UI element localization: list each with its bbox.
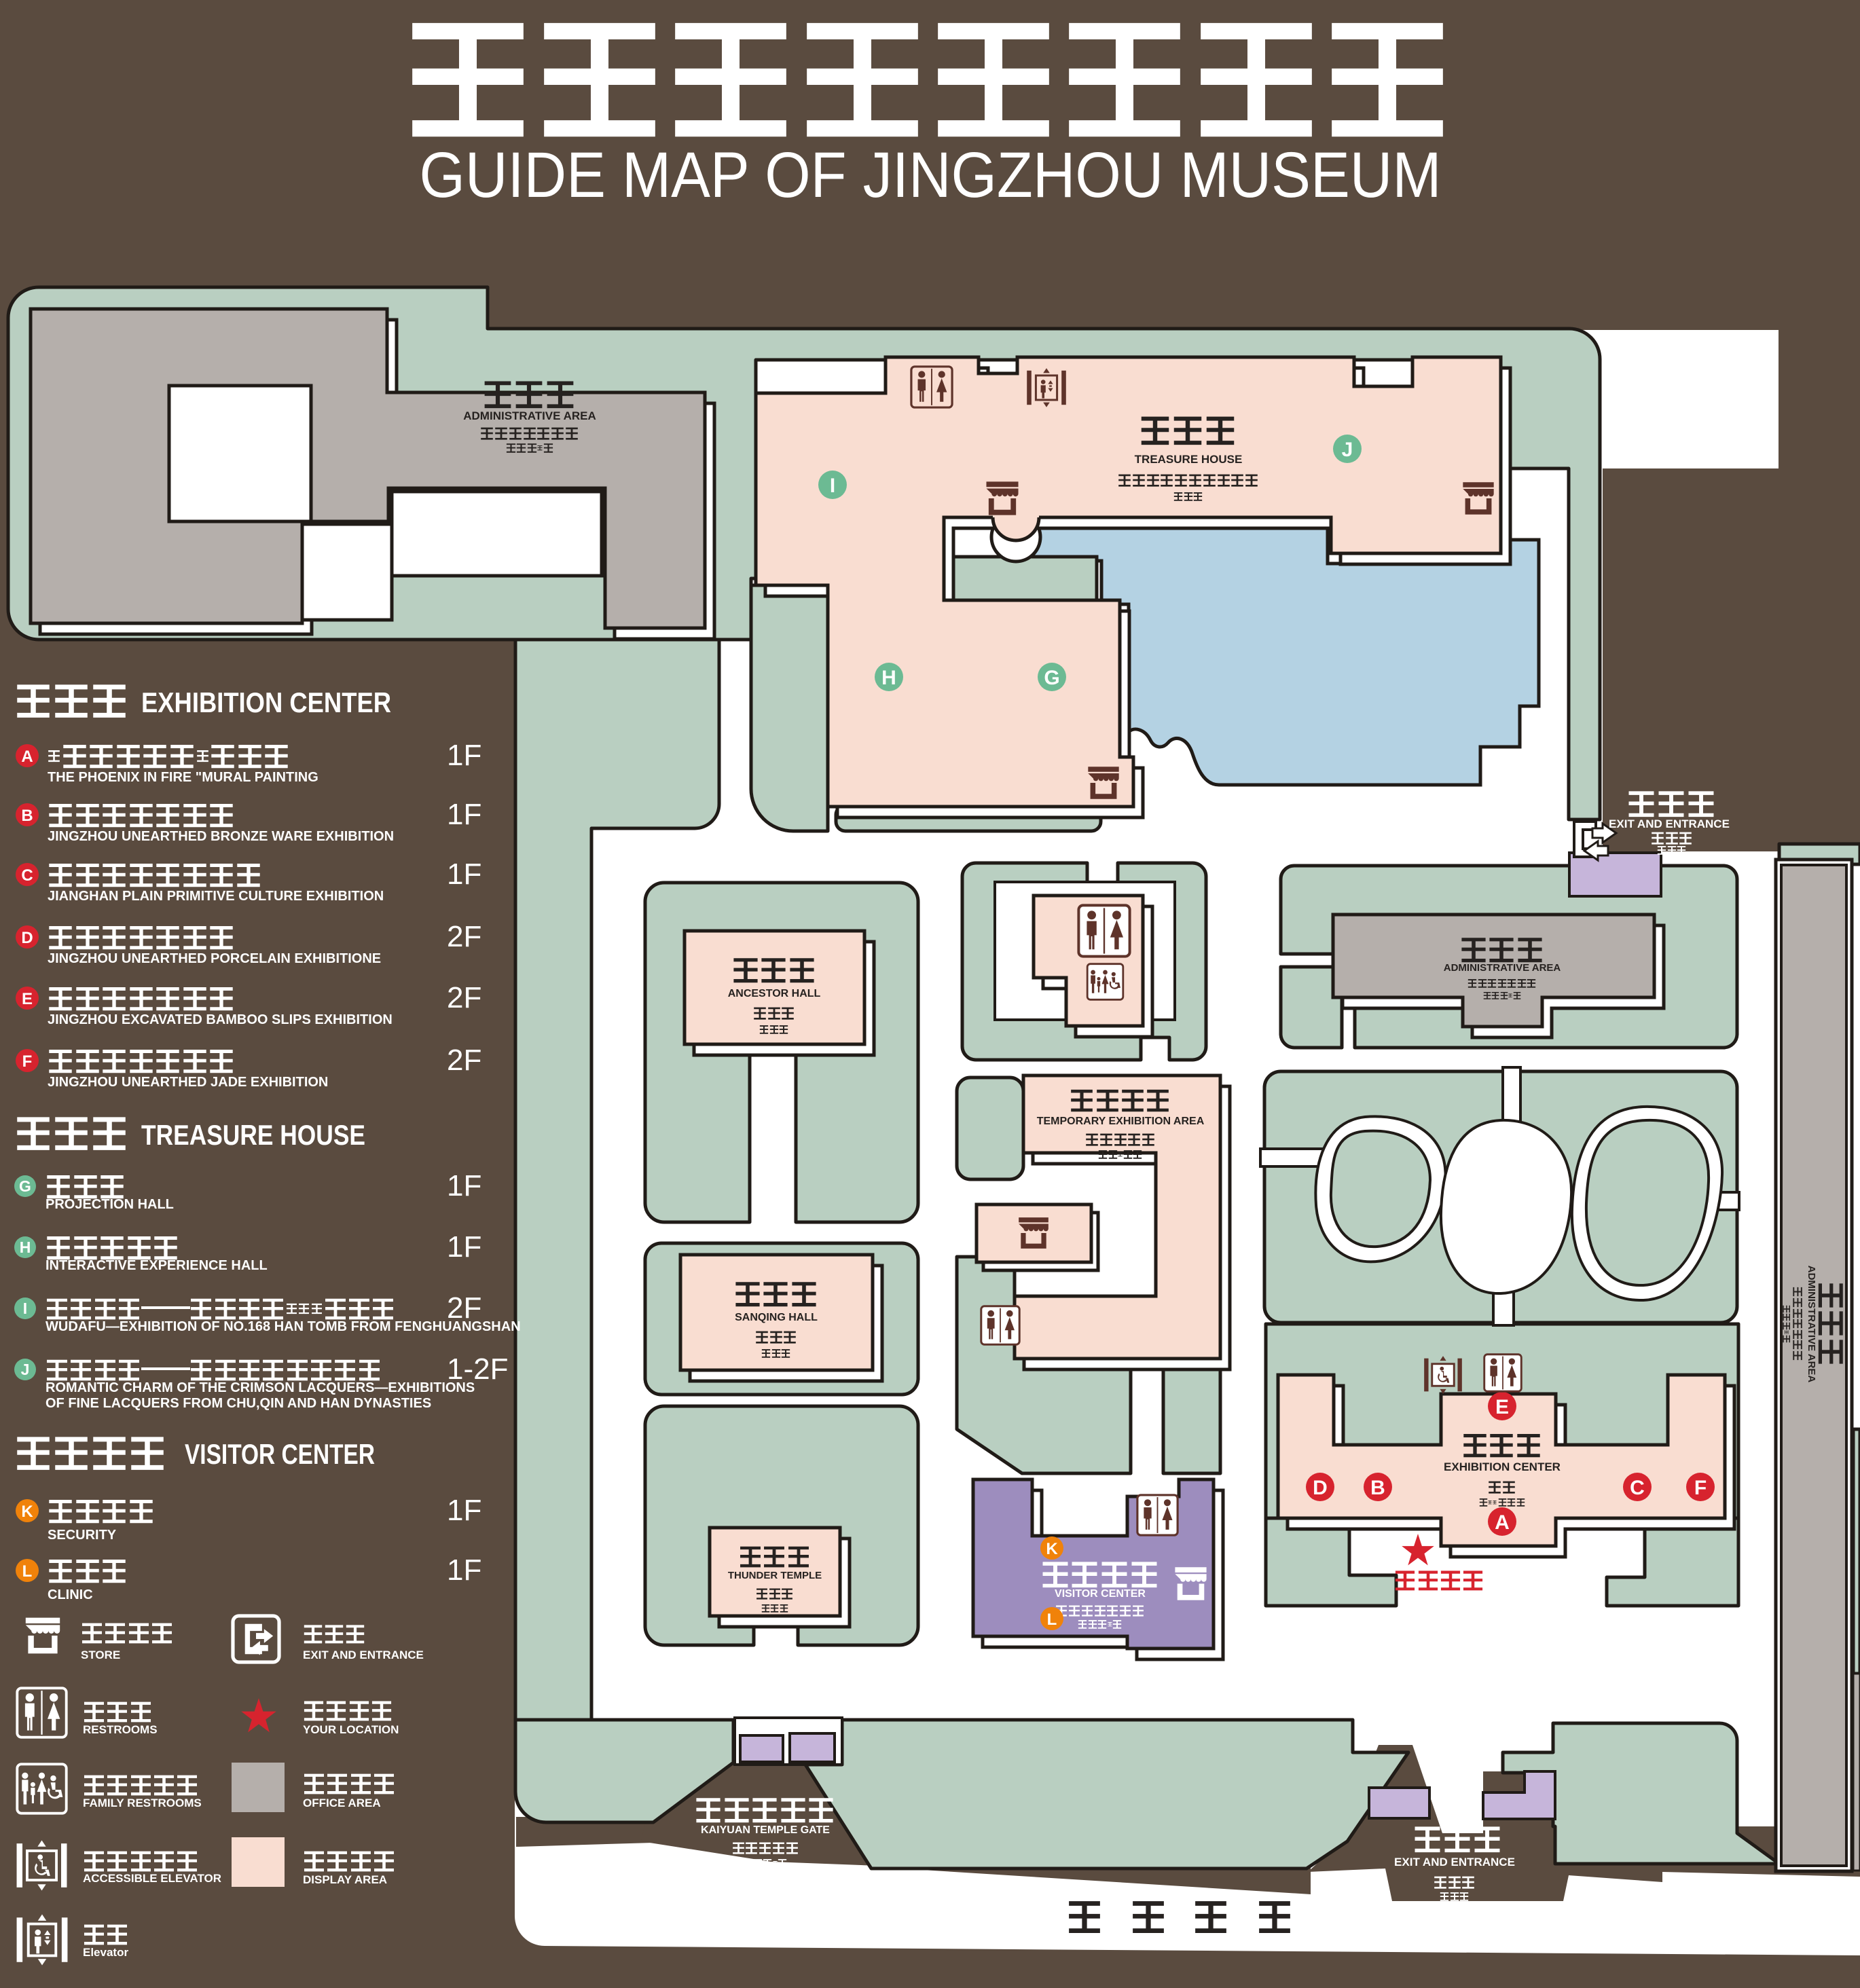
svg-text:I: I — [23, 1300, 27, 1317]
svg-text:J: J — [1342, 439, 1353, 461]
svg-text:EXHIBITION CENTER: EXHIBITION CENTER — [141, 686, 391, 718]
svg-text:C: C — [21, 866, 33, 885]
svg-text:1F: 1F — [447, 798, 481, 831]
svg-text:A: A — [21, 748, 33, 766]
svg-text:B: B — [21, 807, 33, 825]
svg-text:1F: 1F — [447, 1169, 481, 1202]
svg-text:SECURITY: SECURITY — [48, 1528, 117, 1543]
svg-text:JINGZHOU UNEARTHED PORCELAIN E: JINGZHOU UNEARTHED PORCELAIN EXHIBITIONE — [48, 951, 381, 966]
svg-text:VISITOR CENTER: VISITOR CENTER — [1055, 1588, 1146, 1600]
svg-text:EXIT AND ENTRANCE: EXIT AND ENTRANCE — [1609, 817, 1730, 830]
svg-text:A: A — [1495, 1511, 1510, 1534]
svg-text:G: G — [1044, 667, 1059, 689]
svg-text:KAIYUAN TEMPLE GATE: KAIYUAN TEMPLE GATE — [701, 1824, 830, 1836]
svg-text:E: E — [22, 990, 33, 1008]
svg-text:1F: 1F — [447, 1553, 481, 1587]
svg-text:K: K — [21, 1503, 33, 1521]
svg-text:EXIT AND ENTRANCE: EXIT AND ENTRANCE — [1394, 1856, 1515, 1869]
svg-text:2F: 2F — [447, 1291, 481, 1325]
svg-text:K: K — [1046, 1540, 1058, 1558]
svg-text:D: D — [21, 929, 33, 947]
svg-text:D: D — [1313, 1477, 1328, 1499]
svg-text:VISITOR CENTER: VISITOR CENTER — [185, 1438, 375, 1470]
svg-text:1F: 1F — [447, 858, 481, 891]
svg-text:1F: 1F — [447, 739, 481, 772]
svg-text:2F: 2F — [447, 981, 481, 1014]
svg-text:E: E — [1495, 1396, 1509, 1418]
svg-text:ADMINISTRATIVE AREA: ADMINISTRATIVE AREA — [1806, 1266, 1817, 1383]
svg-text:RESTROOMS: RESTROOMS — [83, 1723, 158, 1736]
svg-text:INTERACTIVE EXPERIENCE HALL: INTERACTIVE EXPERIENCE HALL — [45, 1258, 268, 1273]
svg-text:THUNDER TEMPLE: THUNDER TEMPLE — [728, 1570, 822, 1581]
svg-text:ADMINISTRATIVE AREA: ADMINISTRATIVE AREA — [463, 409, 596, 422]
svg-text:YOUR LOCATION: YOUR LOCATION — [303, 1723, 399, 1736]
svg-text:B: B — [1370, 1477, 1385, 1499]
svg-text:OF FINE LACQUERS FROM CHU,QIN: OF FINE LACQUERS FROM CHU,QIN AND HAN DY… — [45, 1396, 431, 1411]
svg-text:2F: 2F — [447, 920, 481, 953]
svg-text:THE PHOENIX IN FIRE "MURAL PAI: THE PHOENIX IN FIRE "MURAL PAINTING — [48, 770, 318, 785]
svg-text:F: F — [22, 1052, 33, 1071]
svg-text:PROJECTION HALL: PROJECTION HALL — [45, 1197, 174, 1212]
svg-text:JINGZHOU UNEARTHED BRONZE WARE: JINGZHOU UNEARTHED BRONZE WARE EXHIBITIO… — [48, 829, 394, 844]
svg-text:H: H — [20, 1238, 31, 1256]
svg-text:EXIT AND ENTRANCE: EXIT AND ENTRANCE — [303, 1649, 424, 1661]
svg-text:H: H — [881, 667, 896, 689]
svg-text:EXHIBITION CENTER: EXHIBITION CENTER — [1444, 1460, 1561, 1473]
svg-text:GUIDE MAP OF JINGZHOU MUSEUM: GUIDE MAP OF JINGZHOU MUSEUM — [420, 139, 1442, 211]
svg-text:Elevator: Elevator — [83, 1946, 128, 1959]
svg-text:I: I — [830, 475, 835, 497]
svg-text:SANQING HALL: SANQING HALL — [735, 1312, 818, 1323]
svg-text:JINGZHOU UNEARTHED JADE EXHIBI: JINGZHOU UNEARTHED JADE EXHIBITION — [48, 1075, 328, 1090]
svg-text:JINGZHOU EXCAVATED BAMBOO SLIP: JINGZHOU EXCAVATED BAMBOO SLIPS EXHIBITI… — [48, 1012, 393, 1027]
svg-text:1F: 1F — [447, 1494, 481, 1527]
svg-text:FAMILY RESTROOMS: FAMILY RESTROOMS — [83, 1797, 202, 1809]
svg-text:C: C — [1630, 1477, 1645, 1499]
svg-text:JIANGHAN PLAIN PRIMITIVE CULTU: JIANGHAN PLAIN PRIMITIVE CULTURE EXHIBIT… — [48, 889, 384, 904]
svg-text:STORE: STORE — [81, 1649, 120, 1661]
svg-text:L: L — [1047, 1610, 1057, 1629]
svg-text:TREASURE HOUSE: TREASURE HOUSE — [141, 1119, 365, 1151]
svg-text:L: L — [22, 1562, 33, 1581]
svg-text:ACCESSIBLE ELEVATOR: ACCESSIBLE ELEVATOR — [83, 1872, 221, 1885]
svg-text:F: F — [1694, 1477, 1707, 1499]
svg-text:DISPLAY AREA: DISPLAY AREA — [303, 1873, 387, 1886]
svg-text:ANCESTOR HALL: ANCESTOR HALL — [728, 988, 821, 999]
svg-text:ADMINISTRATIVE AREA: ADMINISTRATIVE AREA — [1444, 962, 1561, 974]
svg-text:2F: 2F — [447, 1044, 481, 1077]
svg-text:OFFICE AREA: OFFICE AREA — [303, 1797, 381, 1809]
svg-text:G: G — [19, 1177, 31, 1195]
svg-text:TEMPORARY EXHIBITION AREA: TEMPORARY EXHIBITION AREA — [1037, 1116, 1205, 1127]
svg-text:J: J — [21, 1361, 30, 1378]
svg-text:TREASURE HOUSE: TREASURE HOUSE — [1135, 453, 1243, 466]
svg-text:1F: 1F — [447, 1230, 481, 1264]
svg-text:CLINIC: CLINIC — [48, 1587, 93, 1602]
svg-text:1-2F: 1-2F — [447, 1352, 508, 1386]
svg-text:ROMANTIC CHARM OF THE CRIMSON: ROMANTIC CHARM OF THE CRIMSON LACQUERS—E… — [45, 1380, 475, 1395]
